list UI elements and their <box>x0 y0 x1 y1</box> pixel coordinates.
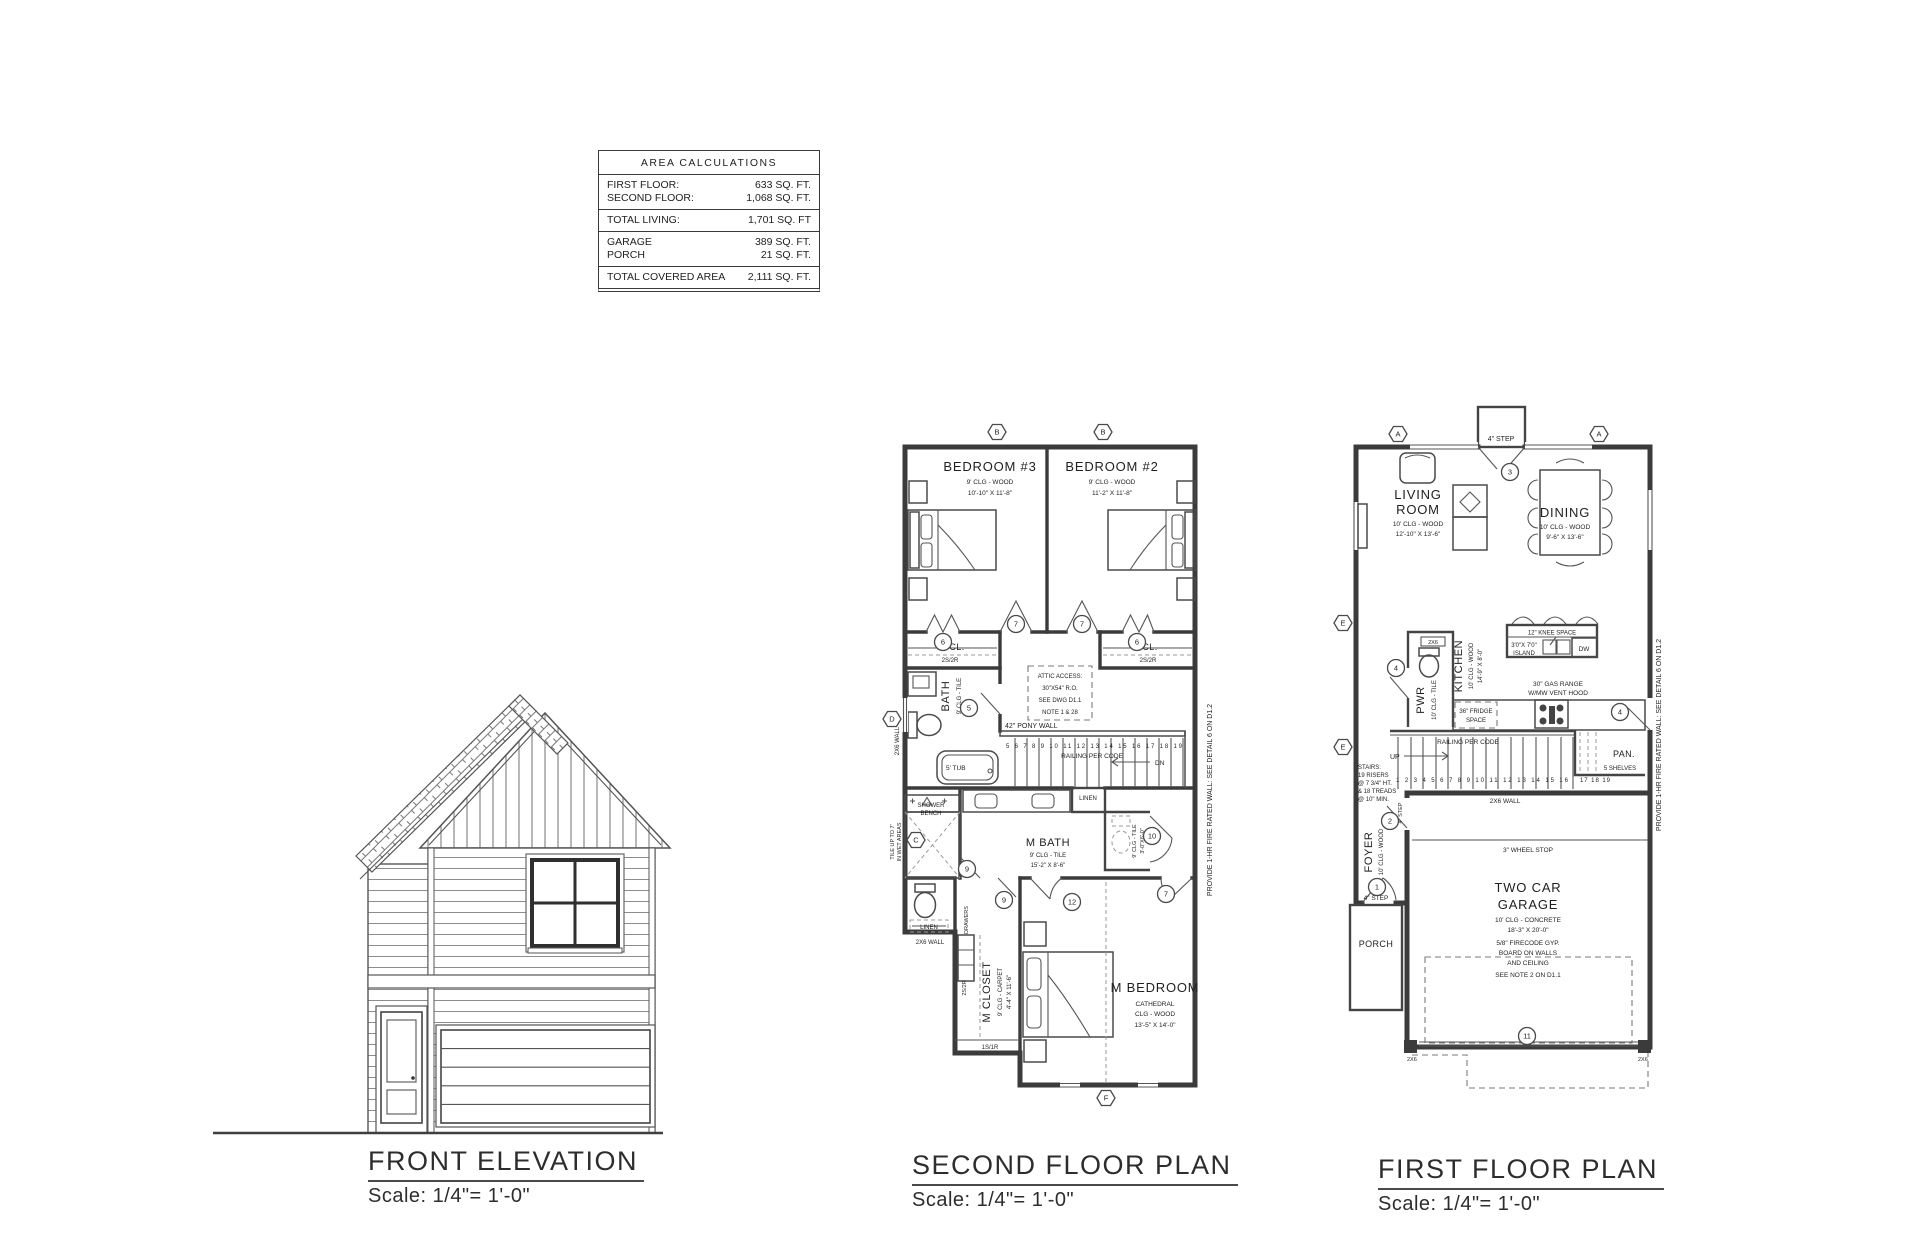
range-note: 30" GAS RANGE <box>1533 681 1584 688</box>
marker-circle-1: 1 <box>1369 879 1386 896</box>
marker-circle-9: 9 <box>996 892 1013 909</box>
wall-note: 2X6 <box>1428 640 1438 646</box>
room-clg-mbedroom: CATHEDRAL <box>1136 1001 1175 1008</box>
room-size-kitchen: 14'-9" X 8'-0" <box>1478 649 1484 684</box>
wall-note: 2X6 WALL <box>916 940 945 946</box>
room-clg-mcloset: 9' CLG - CARPET <box>998 968 1004 1016</box>
stair-tread-numbers: 1 2 3 4 5 6 7 8 9 10 11 12 13 14 15 16 <box>1396 778 1569 784</box>
room-clg-kitchen: 10' CLG - WOOD <box>1469 642 1475 689</box>
marker-circle-4: 4 <box>1388 660 1405 677</box>
wall-note: 2X6 WALL <box>1490 798 1521 805</box>
marker-label: 4 <box>1394 664 1398 673</box>
railing-note: RAILING PER CODE <box>1061 753 1123 760</box>
island-note: 3'0"X 7'0" <box>1511 643 1537 649</box>
marker-label: B <box>1100 428 1105 437</box>
room-label-mbedroom: M BEDROOM <box>1111 980 1200 995</box>
closet-shelf-note: 2S/2R <box>1140 658 1157 664</box>
pantry-shelf-note: 5 SHELVES <box>1604 766 1636 772</box>
room-label-garage: GARAGE <box>1498 897 1558 912</box>
first-floor-plan-drawing: 4" STEP LIVING ROOM 10' CLG - WOOD 12'-1… <box>1334 407 1663 1088</box>
room-clg-dining: 10' CLG - WOOD <box>1540 524 1591 531</box>
range-note: W/MW VENT HOOD <box>1528 690 1588 697</box>
belly-band-trim <box>368 975 655 988</box>
room-label-mbath: M BATH <box>1026 837 1070 849</box>
room-label-bedroom3: BEDROOM #3 <box>943 459 1036 474</box>
garage-note: 10' CLG - CONCRETE <box>1495 917 1562 924</box>
stairs-note: & 18 TREADS <box>1358 789 1396 795</box>
room-size-bedroom3: 10'-10" X 11'-8" <box>968 490 1013 497</box>
marker-circle-4: 4 <box>1612 704 1629 721</box>
marker-hex-A: A <box>1389 427 1407 442</box>
garage-note: SEE NOTE 2 ON D1.1 <box>1495 972 1561 979</box>
marker-label: 11 <box>1523 1032 1531 1041</box>
attic-note: SEE DWG D1.1 <box>1039 698 1082 704</box>
marker-label: A <box>1596 430 1601 439</box>
room-size-mcloset: 4'-4" X 11'-6" <box>1007 975 1013 1009</box>
marker-circle-7: 7 <box>1158 886 1175 903</box>
marker-hex-B: B <box>988 425 1006 440</box>
railing-note: RAILING PER CODE <box>1437 739 1499 746</box>
marker-label: 9 <box>965 865 969 874</box>
shelf-note: 1S/1R <box>982 1045 999 1051</box>
knee-space-note: 12" KNEE SPACE <box>1528 631 1576 637</box>
marker-label: D <box>889 715 895 724</box>
marker-label: 2 <box>1388 817 1392 826</box>
wheel-stop-note: 3" WHEEL STOP <box>1503 847 1553 854</box>
marker-hex-F: F <box>1097 1091 1115 1106</box>
room-clg-mbedroom: CLG - WOOD <box>1135 1011 1175 1018</box>
room-label-pwr: PWR <box>1415 686 1427 713</box>
marker-label: 5 <box>967 704 971 713</box>
room-clg-bedroom3: 9' CLG - WOOD <box>967 479 1014 486</box>
garage-door <box>441 1030 650 1123</box>
linen-label: LINEN <box>1079 796 1097 802</box>
room-label-foyer: FOYER <box>1363 832 1375 873</box>
up-label: UP <box>1390 754 1400 761</box>
room-size-dining: 9'-6" X 13'-6" <box>1546 534 1584 541</box>
drawers-label: DRAWERS <box>964 906 970 934</box>
marker-label: 6 <box>1135 638 1139 647</box>
room-label-living: LIVING <box>1394 487 1441 502</box>
stairs-note: STAIRS: <box>1358 765 1381 771</box>
wet-area-note: TILE UP TO 7' <box>890 824 896 859</box>
fire-wall-note: PROVIDE 1-HR FIRE RATED WALL: SEE DETAIL… <box>1207 704 1214 896</box>
stairs-note: @ 7 3/4" HT. <box>1358 781 1392 787</box>
marker-label: 7 <box>1080 620 1084 629</box>
marker-label: 7 <box>1164 890 1168 899</box>
room-size-bedroom2: 11'-2" X 11'-8" <box>1092 490 1133 497</box>
stair-tread-numbers: 17 18 19 <box>1580 778 1611 784</box>
marker-circle-2: 2 <box>1382 813 1399 830</box>
marker-label: 12 <box>1068 898 1076 907</box>
marker-label: C <box>913 836 919 845</box>
room-label-dining: DINING <box>1540 505 1590 520</box>
marker-label: 10 <box>1148 832 1156 841</box>
down-label: DN <box>1155 760 1165 767</box>
marker-hex-D: D <box>883 712 901 727</box>
wall-note: 2X6 <box>1638 1057 1648 1063</box>
pantry-label: PAN. <box>1613 749 1635 759</box>
room-label-mcloset: M CLOSET <box>981 961 993 1022</box>
wall-note: 2X6 <box>1407 1057 1417 1063</box>
shower-label: SHOWER <box>918 803 946 809</box>
island-note: ISLAND <box>1513 651 1535 657</box>
shower-label: BENCH <box>920 811 941 817</box>
marker-circle-12: 12 <box>1064 894 1081 911</box>
fridge-note: SPACE <box>1466 718 1486 724</box>
marker-hex-A: A <box>1590 427 1608 442</box>
room-size-mbedroom: 13'-5" X 14'-0" <box>1134 1022 1176 1029</box>
room-label-bath: BATH <box>940 681 952 712</box>
fridge-note: 36" FRIDGE <box>1459 709 1492 715</box>
room-clg-mbath: 9' CLG - TILE <box>1030 853 1066 859</box>
marker-label: E <box>1340 619 1345 628</box>
marker-label: 1 <box>1375 883 1379 892</box>
tub-label: 5' TUB <box>946 765 966 772</box>
marker-hex-C: C <box>907 833 925 848</box>
room-label-porch: PORCH <box>1359 939 1394 949</box>
marker-circle-9: 9 <box>959 861 976 878</box>
marker-hex-B: B <box>1094 425 1112 440</box>
wc-clg-note: 9' CLG - TILE <box>1132 824 1138 858</box>
marker-label: 7 <box>1014 620 1018 629</box>
marker-circle-7: 7 <box>1074 616 1091 633</box>
room-clg-living: 10' CLG - WOOD <box>1393 521 1444 528</box>
marker-label: 9 <box>1002 896 1006 905</box>
garage-note: 18'-3" X 20'-0" <box>1507 927 1549 934</box>
linen-label: LINEN <box>920 925 938 931</box>
shelf-note: 2S/2R <box>962 980 968 995</box>
marker-hex-E: E <box>1334 740 1352 755</box>
architectural-sheet: AREA CALCULATIONS FIRST FLOOR: 633 SQ. F… <box>0 0 1920 1242</box>
stairs-note: 19 RISERS <box>1358 773 1389 779</box>
attic-note: ATTIC ACCESS: <box>1038 674 1083 680</box>
room-size-living: 12'-10" X 13'-6" <box>1396 531 1441 538</box>
plan-line-work: BEDROOM #3 9' CLG - WOOD 10'-10" X 11'-8… <box>0 0 1920 1242</box>
step-note: 4" STEP <box>1488 436 1515 443</box>
attic-note: 30"X54" R.O. <box>1042 686 1078 692</box>
marker-circle-11: 11 <box>1519 1028 1536 1045</box>
marker-circle-7: 7 <box>1008 616 1025 633</box>
marker-hex-E: E <box>1334 616 1352 631</box>
marker-label: 6 <box>941 638 945 647</box>
marker-label: B <box>994 428 999 437</box>
marker-circle-3: 3 <box>1502 464 1519 481</box>
garage-note: 5/8" FIRECODE GYP. <box>1496 940 1559 947</box>
front-elevation-drawing <box>213 695 670 1133</box>
marker-label: A <box>1395 430 1400 439</box>
attic-note: NOTE 1 & 28 <box>1042 710 1078 716</box>
stairs-note: @ 10" MIN. <box>1358 797 1389 803</box>
room-label-kitchen: KITCHEN <box>1453 640 1465 692</box>
room-label-garage: TWO CAR <box>1495 880 1562 895</box>
dishwasher-label: DW <box>1579 646 1591 653</box>
garage-note: AND CEILING <box>1507 960 1549 967</box>
second-floor-plan-drawing: BEDROOM #3 9' CLG - WOOD 10'-10" X 11'-8… <box>883 425 1214 1106</box>
marker-circle-6: 6 <box>935 634 952 651</box>
marker-label: E <box>1340 743 1345 752</box>
room-size-mbath: 15'-2" X 8'-6" <box>1031 863 1066 869</box>
marker-label: F <box>1104 1094 1109 1103</box>
closet-shelf-note: 2S/2R <box>942 658 959 664</box>
marker-circle-5: 5 <box>961 700 978 717</box>
wall-note: 2X6 WALL <box>895 726 901 755</box>
garage-note: BOARD ON WALLS <box>1499 950 1558 957</box>
marker-circle-10: 10 <box>1144 828 1161 845</box>
fire-wall-note: PROVIDE 1-HR FIRE RATED WALL: SEE DETAIL… <box>1656 639 1663 831</box>
marker-circle-6: 6 <box>1129 634 1146 651</box>
marker-label: 4 <box>1618 708 1622 717</box>
wet-area-note: IN WET AREAS <box>897 822 903 861</box>
room-label-bedroom2: BEDROOM #2 <box>1065 459 1158 474</box>
room-clg-bedroom2: 9' CLG - WOOD <box>1089 479 1136 486</box>
pony-wall-note: 42" PONY WALL <box>1005 723 1058 730</box>
room-clg-foyer: 10' CLG - WOOD <box>1379 828 1385 875</box>
room-label-living: ROOM <box>1396 502 1440 517</box>
room-clg-pwr: 10' CLG - TILE <box>1432 680 1438 720</box>
marker-label: 3 <box>1508 468 1512 477</box>
